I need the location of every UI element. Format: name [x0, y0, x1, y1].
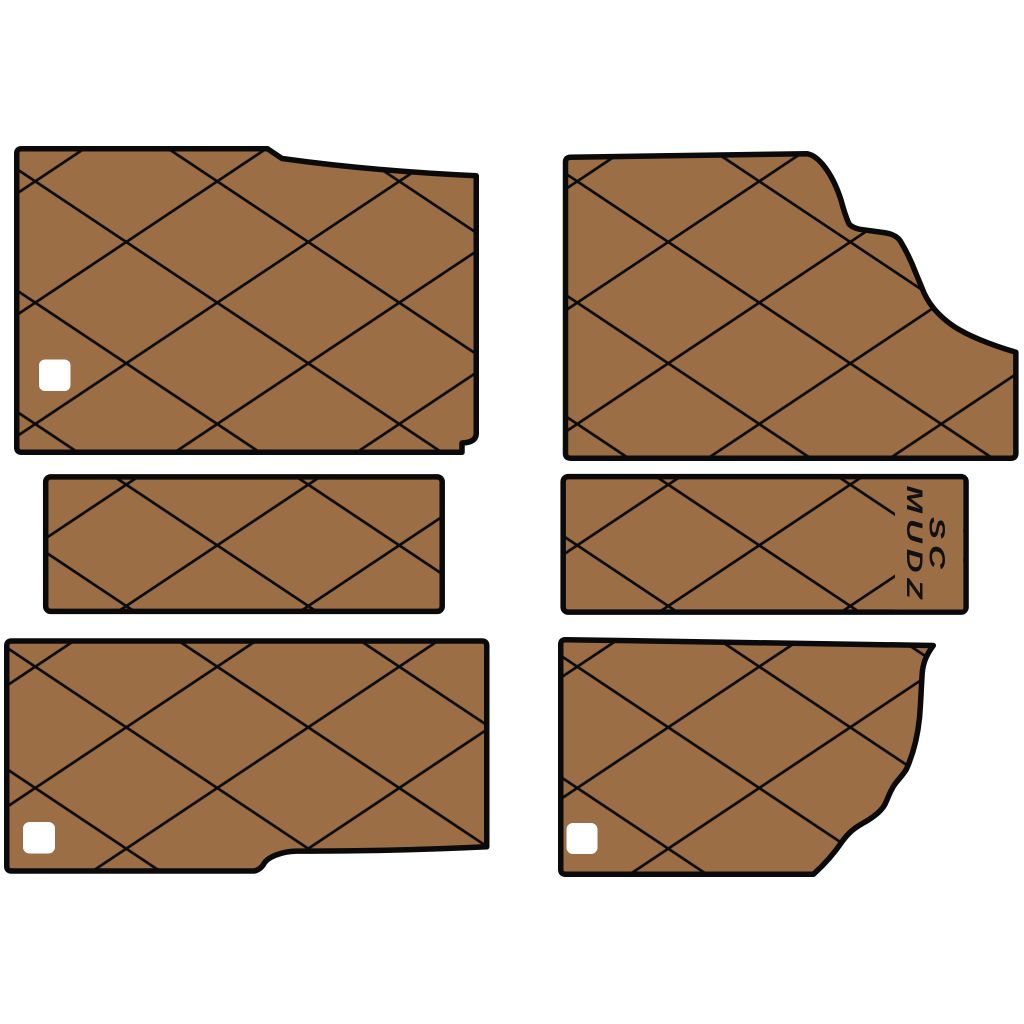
- svg-text:SC: SC: [925, 517, 949, 575]
- svg-text:MUDZ: MUDZ: [902, 486, 926, 605]
